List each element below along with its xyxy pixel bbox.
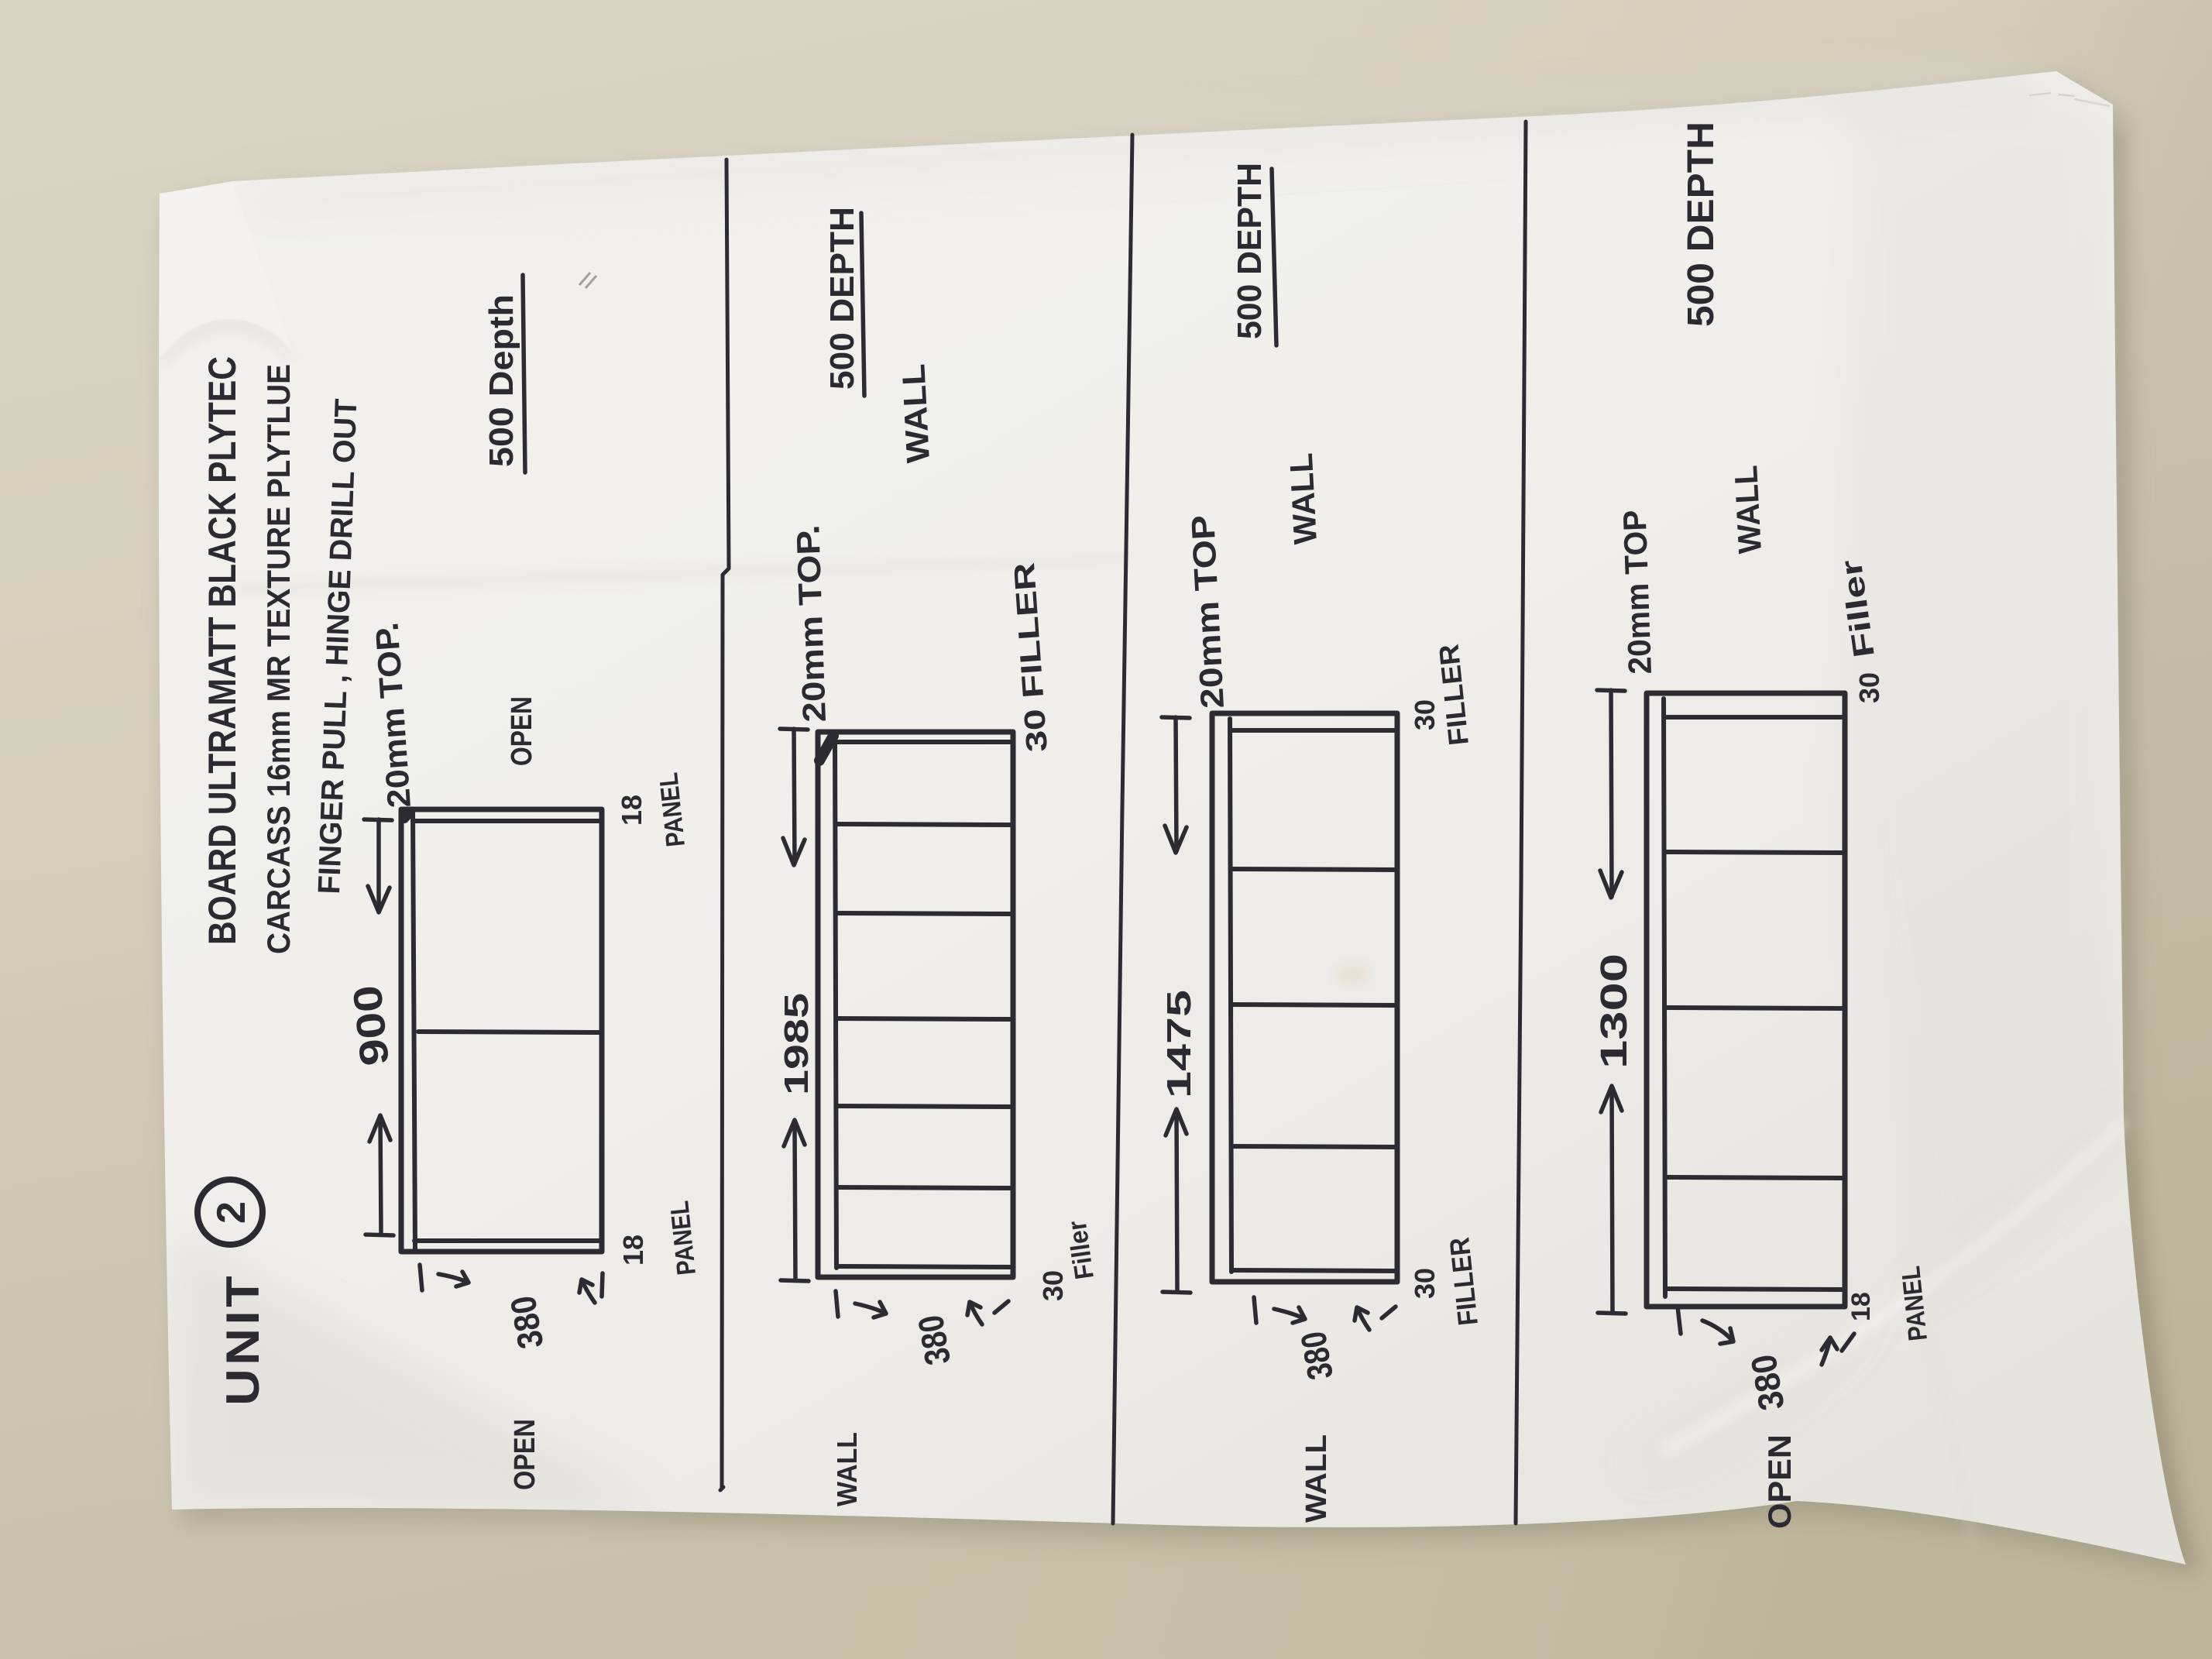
svg-text:CARCASS 16mm MR TEXTURE PLYTLU: CARCASS 16mm MR TEXTURE PLYTLUE — [260, 364, 297, 954]
svg-text:500 Depth: 500 Depth — [483, 294, 520, 467]
svg-text:30: 30 — [1037, 1270, 1069, 1301]
svg-text:900: 900 — [345, 983, 398, 1067]
svg-text:18: 18 — [617, 1235, 649, 1266]
svg-text:30: 30 — [1853, 672, 1885, 703]
svg-text:500 DEPTH: 500 DEPTH — [1681, 122, 1722, 327]
svg-text:20mm TOP: 20mm TOP — [1616, 510, 1658, 675]
svg-text:20mm TOP.: 20mm TOP. — [789, 524, 833, 723]
svg-text:OPEN: OPEN — [506, 696, 538, 766]
svg-text:WALL: WALL — [1727, 465, 1768, 555]
svg-text:OPEN: OPEN — [1761, 1434, 1798, 1529]
svg-text:2: 2 — [209, 1201, 254, 1224]
svg-text:18: 18 — [616, 795, 647, 826]
svg-text:30: 30 — [1409, 699, 1441, 730]
svg-text:30: 30 — [1409, 1268, 1441, 1299]
svg-text:500 DEPTH: 500 DEPTH — [823, 207, 861, 390]
svg-text:WALL: WALL — [895, 363, 936, 464]
svg-text:UNIT: UNIT — [217, 1273, 269, 1406]
svg-text:WALL: WALL — [831, 1432, 863, 1506]
svg-text:18: 18 — [1846, 1292, 1876, 1321]
svg-text:WALL: WALL — [1300, 1434, 1333, 1523]
svg-text:BOARD ULTRAMATT BLACK PLYTEC: BOARD ULTRAMATT BLACK PLYTEC — [201, 356, 244, 945]
svg-text:1300: 1300 — [1594, 953, 1635, 1069]
svg-text:OPEN: OPEN — [509, 1419, 541, 1490]
svg-text:380: 380 — [910, 1312, 958, 1368]
svg-text:500 DEPTH: 500 DEPTH — [1231, 163, 1269, 339]
svg-text:1475: 1475 — [1160, 990, 1198, 1098]
svg-text:WALL: WALL — [1283, 452, 1324, 545]
svg-text:1985: 1985 — [778, 993, 816, 1095]
svg-text:380: 380 — [1293, 1328, 1341, 1382]
